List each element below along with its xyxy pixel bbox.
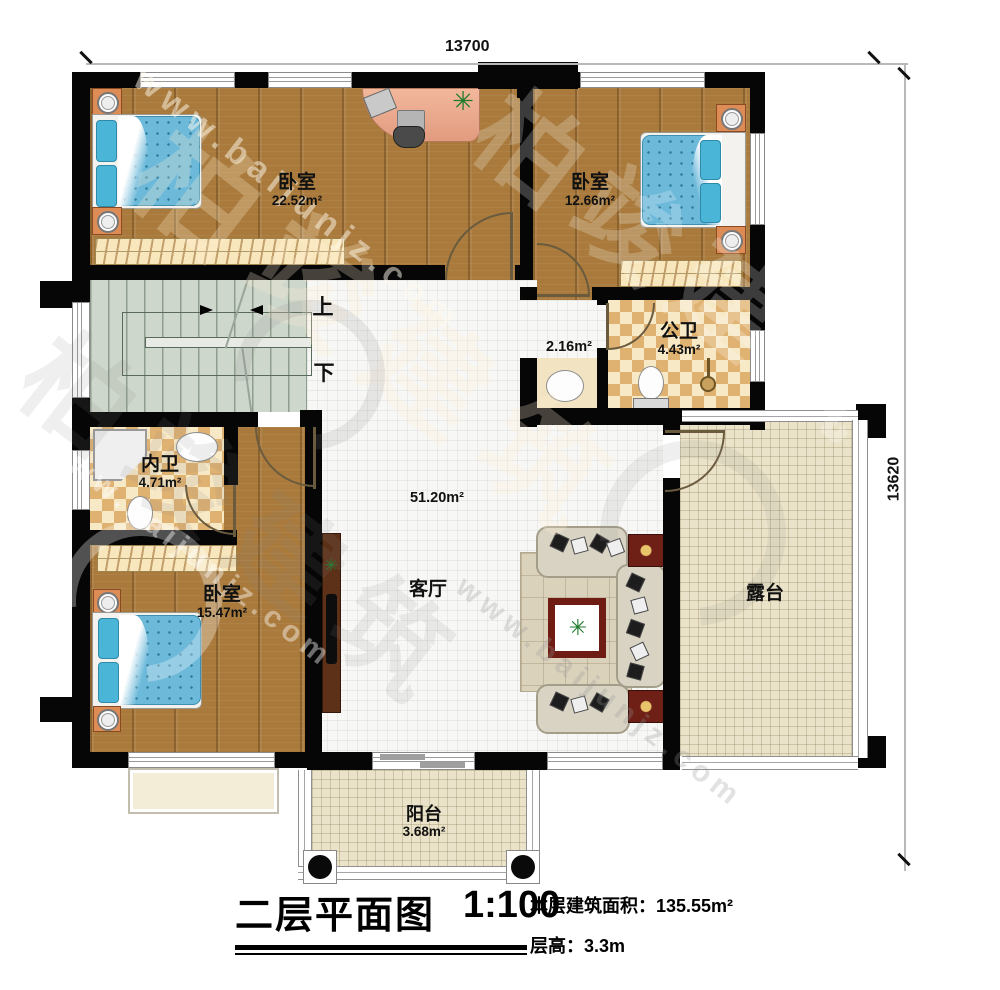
- door-leaf: [313, 427, 316, 489]
- lamp-icon: [97, 709, 119, 731]
- wardrobe: [95, 238, 345, 265]
- room-name: 阳台: [403, 805, 446, 825]
- wall: [224, 427, 238, 485]
- window: [750, 330, 765, 382]
- room-label-wash-anteroom: 2.16m²: [546, 340, 592, 356]
- plan-title: 二层平面图: [235, 884, 435, 939]
- side-table: [628, 534, 664, 567]
- wall-pilaster: [40, 697, 72, 722]
- bay-window-box: [128, 768, 279, 814]
- stairs-up-label: 上: [313, 296, 334, 319]
- room-label-balcony: 阳台 3.68m²: [403, 805, 446, 840]
- lamp-icon: [97, 592, 119, 614]
- door-leaf: [606, 303, 609, 350]
- plant-icon: ✳: [566, 615, 590, 639]
- pillow: [700, 183, 721, 223]
- floor-height-label: 层高：: [530, 936, 584, 956]
- plant-icon: ✳: [448, 86, 478, 116]
- washbasin: [176, 432, 218, 462]
- balcony-column: [308, 855, 332, 879]
- bed-sheet-fold: [118, 116, 148, 206]
- window: [72, 302, 90, 398]
- wall: [663, 478, 680, 770]
- stairs-down-text: 下: [314, 362, 335, 385]
- room-name: 内卫: [139, 455, 182, 476]
- wall: [76, 412, 258, 427]
- lamp-icon: [97, 92, 119, 114]
- room-label-bedroom-top-right: 卧室 12.66m²: [565, 173, 615, 209]
- room-label-living-area: 51.20m²: [410, 491, 464, 507]
- window: [140, 72, 235, 88]
- bed-sheet-fold: [119, 615, 149, 705]
- wall: [90, 265, 445, 280]
- door-leaf: [510, 212, 513, 280]
- wall: [520, 287, 537, 300]
- pillow: [98, 662, 119, 703]
- dimension-height: 13620: [885, 457, 903, 502]
- floor-area-value: 135.55m²: [656, 896, 733, 916]
- window: [72, 450, 90, 510]
- window: [547, 752, 663, 770]
- room-label-terrace: 露台: [746, 584, 784, 605]
- room-label-living-name: 客厅: [409, 580, 447, 601]
- room-name: 卧室: [197, 585, 247, 606]
- dimension-width: 13700: [445, 38, 490, 56]
- pillow: [96, 165, 117, 207]
- stair-direction-arrow: [250, 305, 263, 315]
- lamp-icon: [97, 211, 119, 233]
- room-label-bedroom-top-left: 卧室 22.52m²: [272, 173, 322, 209]
- wardrobe: [620, 260, 742, 287]
- wall-pilaster: [40, 281, 72, 308]
- sliding-door-panel: [380, 754, 425, 760]
- room-area: 2.16m²: [546, 340, 592, 356]
- balcony-column: [511, 855, 535, 879]
- title-info: 本层建筑面积：135.55m² 层高：3.3m: [530, 892, 733, 958]
- door-leaf: [665, 430, 725, 433]
- lamp-icon: [721, 108, 743, 130]
- terrace-railing: [682, 410, 858, 422]
- terrace-railing: [852, 420, 868, 758]
- door-leaf: [233, 485, 236, 537]
- toilet-bowl: [127, 496, 153, 530]
- title-underline-thin: [235, 953, 527, 955]
- room-name: 公卫: [658, 322, 701, 343]
- floor-height-value: 3.3m: [584, 936, 625, 956]
- stairs-down-label: 下: [314, 362, 335, 385]
- room-name: 客厅: [409, 580, 447, 601]
- room-area: 3.68m²: [403, 825, 446, 840]
- wall: [515, 265, 533, 280]
- door-leaf: [537, 294, 590, 297]
- room-area: 22.52m²: [272, 194, 322, 209]
- lamp-icon: [721, 230, 743, 252]
- toilet-bowl: [638, 366, 664, 400]
- room-label-ensuite-bathroom: 内卫 4.71m²: [139, 455, 182, 491]
- pillow: [700, 140, 721, 180]
- wardrobe: [97, 545, 237, 572]
- wall: [76, 530, 237, 545]
- wall: [475, 752, 547, 770]
- wall: [307, 752, 372, 770]
- room-name: 卧室: [565, 173, 615, 194]
- side-table: [628, 690, 664, 723]
- wall: [300, 410, 322, 427]
- room-area: 12.66m²: [565, 194, 615, 209]
- room-area: 4.71m²: [139, 476, 182, 491]
- room-area: 51.20m²: [410, 491, 464, 507]
- dimension-line-right: [904, 63, 906, 871]
- bay-window: [128, 752, 275, 768]
- room-area: 4.43m²: [658, 343, 701, 358]
- room-label-bedroom-bottom: 卧室 15.47m²: [197, 585, 247, 621]
- floor-drain-stem: [707, 358, 710, 378]
- window: [268, 72, 352, 88]
- floor-area-row: 本层建筑面积：135.55m²: [530, 892, 733, 918]
- wall: [520, 72, 533, 267]
- pillow: [98, 618, 119, 659]
- washbasin: [546, 370, 584, 402]
- wall: [592, 287, 765, 300]
- room-name: 露台: [746, 584, 784, 605]
- floor-drain: [700, 376, 716, 392]
- stairs-up-text: 上: [313, 296, 334, 319]
- tv-icon: [326, 594, 337, 664]
- room-area: 15.47m²: [197, 606, 247, 621]
- window: [750, 133, 765, 225]
- plant-icon: ✳: [321, 556, 341, 576]
- desk-chair: [393, 126, 425, 148]
- room-name: 卧室: [272, 173, 322, 194]
- dimension-line-top: [86, 63, 908, 65]
- window: [580, 72, 705, 88]
- floor-height-row: 层高：3.3m: [530, 932, 733, 958]
- floor-area-label: 本层建筑面积：: [530, 896, 656, 916]
- stair-direction-arrow: [200, 305, 213, 315]
- terrace-railing: [682, 756, 858, 770]
- room-label-public-bathroom: 公卫 4.43m²: [658, 322, 701, 358]
- floor-corridor: [307, 280, 537, 752]
- sliding-door-panel: [420, 762, 465, 768]
- floor-plan-canvas: ✳ ✳ ✳: [0, 0, 1000, 990]
- title-underline-thick: [235, 945, 527, 950]
- pillow: [96, 120, 117, 162]
